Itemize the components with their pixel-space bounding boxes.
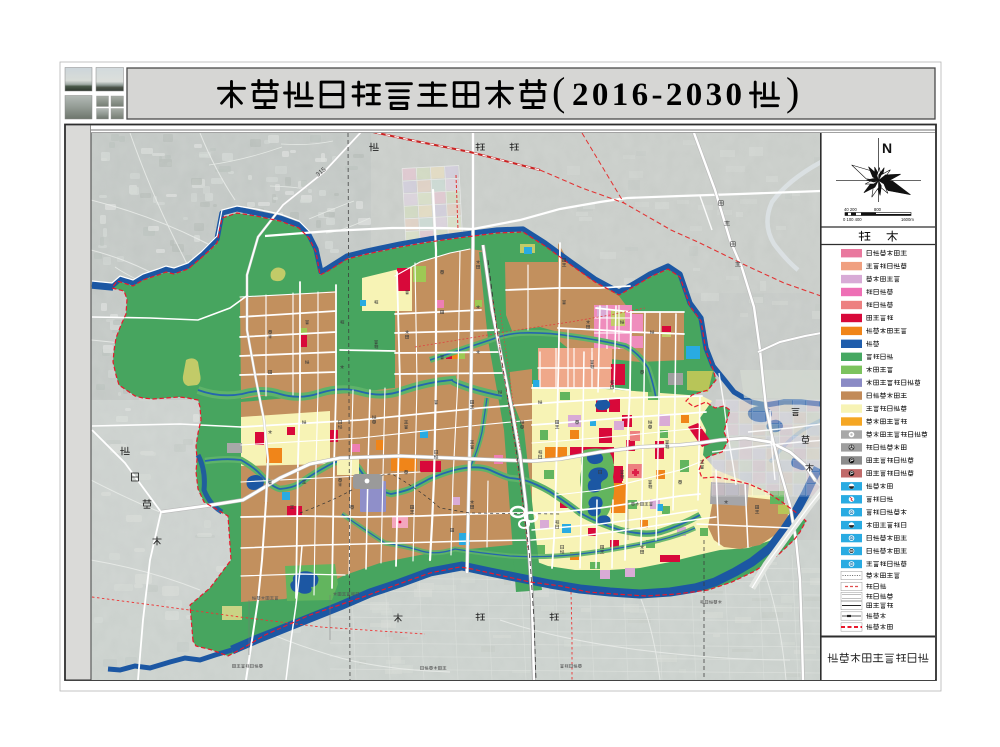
svg-text:(: (: [552, 69, 565, 114]
svg-text:2016-2030: 2016-2030: [572, 77, 742, 113]
svg-text:0 100 400: 0 100 400: [843, 217, 862, 222]
svg-text:): ): [786, 69, 799, 114]
svg-text:N: N: [882, 140, 892, 156]
svg-text:40 200: 40 200: [844, 207, 857, 212]
svg-text:1600m: 1600m: [901, 217, 914, 222]
svg-text:800: 800: [874, 207, 882, 212]
